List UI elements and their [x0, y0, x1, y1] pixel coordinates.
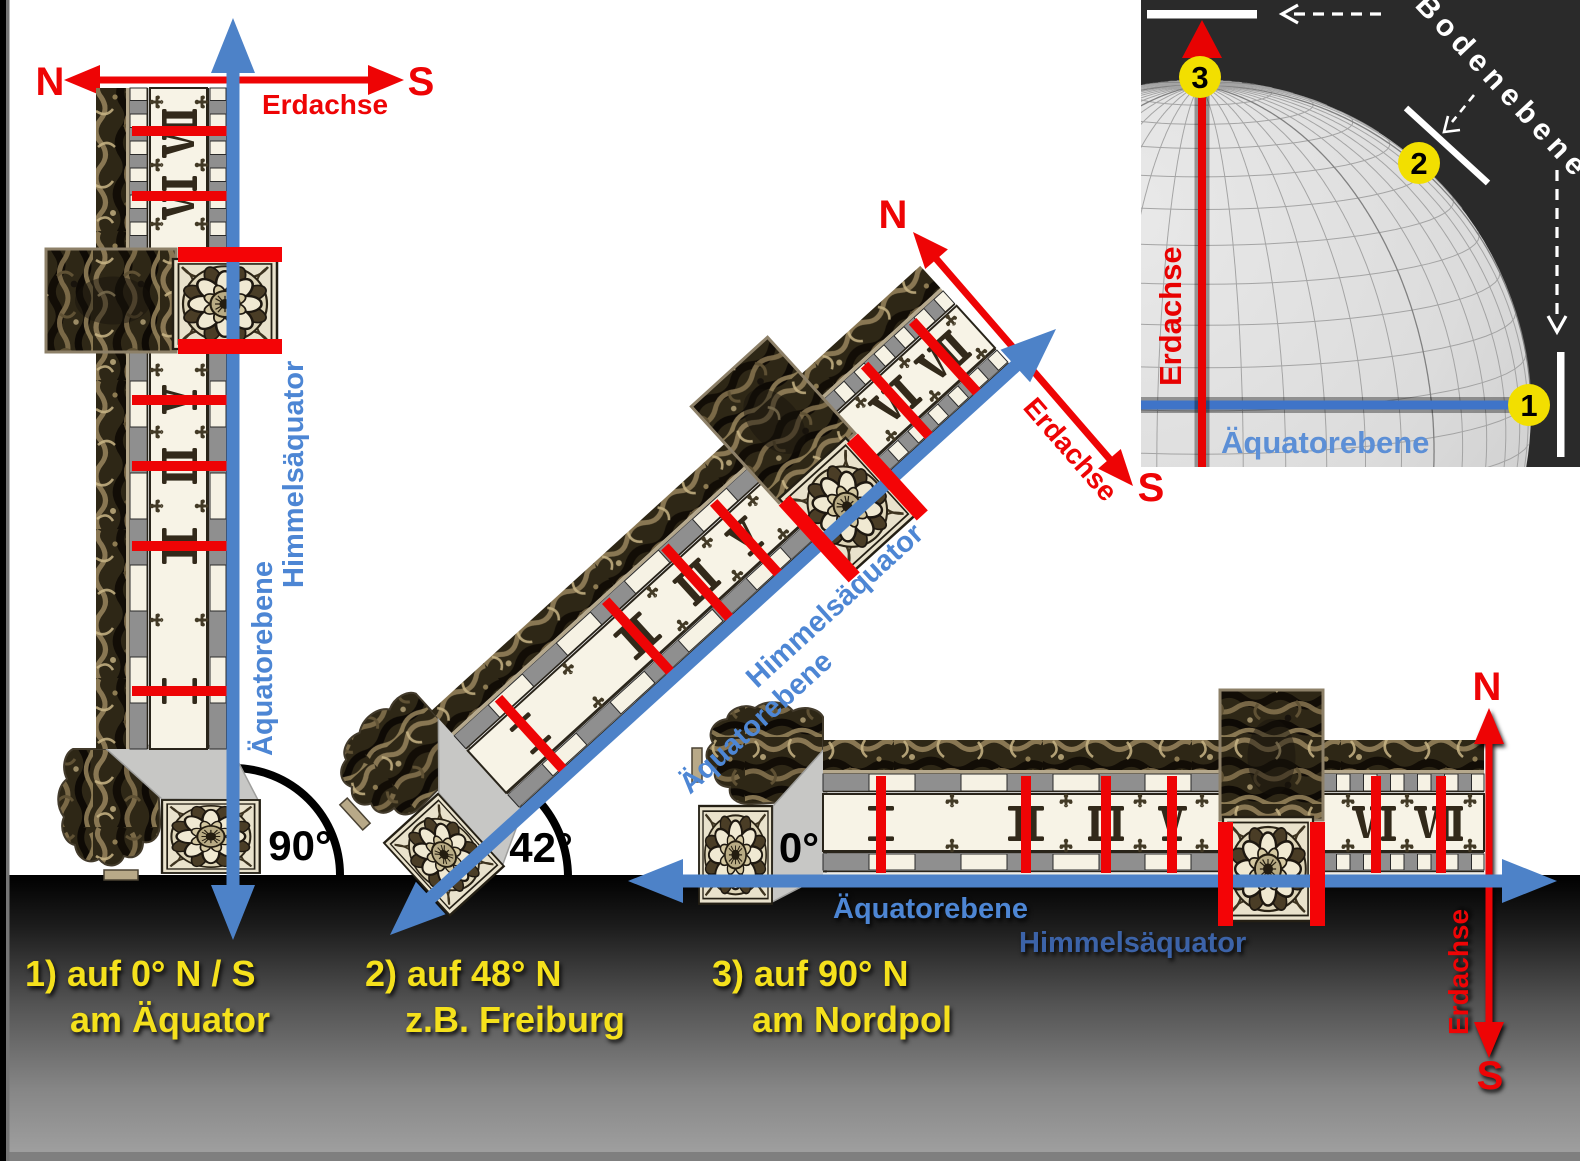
svg-text:am Äquator: am Äquator [70, 999, 270, 1040]
svg-text:Erdachse: Erdachse [262, 89, 388, 120]
svg-text:Himmelsäquator: Himmelsäquator [1019, 927, 1246, 959]
svg-text:z.B. Freiburg: z.B. Freiburg [405, 999, 625, 1040]
svg-text:Äquatorebene: Äquatorebene [1221, 425, 1429, 460]
svg-text:1) auf 0° N / S: 1) auf 0° N / S [25, 953, 255, 994]
svg-text:90°: 90° [268, 822, 332, 869]
svg-text:2) auf 48° N: 2) auf 48° N [365, 953, 561, 994]
svg-text:S: S [1477, 1054, 1504, 1098]
svg-text:42°: 42° [509, 824, 573, 871]
svg-text:N: N [879, 193, 908, 237]
svg-text:S: S [408, 60, 435, 104]
svg-text:N: N [1473, 665, 1502, 709]
svg-text:3: 3 [1191, 60, 1208, 95]
svg-text:Erdachse: Erdachse [1153, 246, 1188, 386]
svg-text:am Nordpol: am Nordpol [752, 999, 952, 1040]
svg-text:S: S [1138, 466, 1165, 510]
svg-text:N: N [36, 60, 65, 104]
svg-text:2: 2 [1410, 146, 1427, 181]
svg-text:Äquatorebene: Äquatorebene [246, 561, 279, 756]
svg-text:Erdachse: Erdachse [1443, 909, 1474, 1035]
svg-text:Himmelsäquator: Himmelsäquator [278, 361, 310, 588]
svg-text:1: 1 [1520, 388, 1537, 423]
svg-text:Äquatorebene: Äquatorebene [833, 892, 1028, 925]
svg-text:0°: 0° [779, 824, 819, 871]
svg-text:3) auf 90° N: 3) auf 90° N [712, 953, 908, 994]
